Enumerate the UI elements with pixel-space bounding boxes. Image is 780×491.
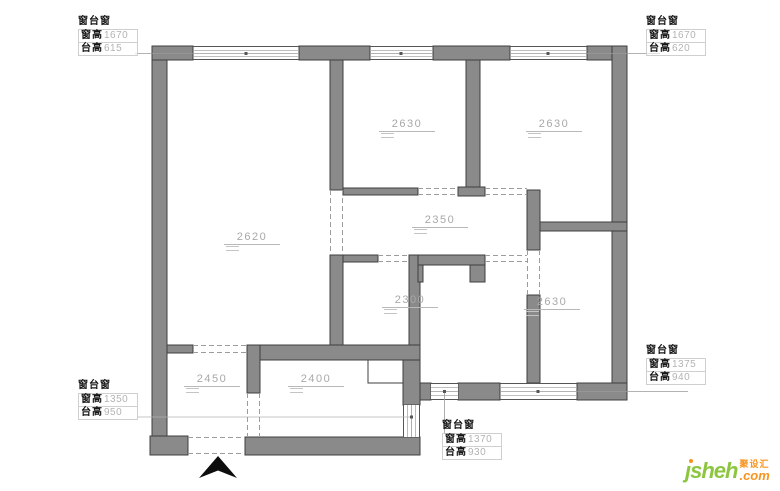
dimension-subtext — [528, 133, 541, 138]
sill-height-row: 台高950 — [78, 406, 138, 420]
dimension-line — [288, 386, 344, 387]
dimension-value: 2350 — [412, 214, 468, 227]
window-label-title: 窗台窗 — [78, 380, 138, 392]
logo-j-dot — [689, 459, 693, 463]
window-height-row: 窗高1350 — [78, 393, 138, 407]
dimension-line — [224, 244, 280, 245]
window-label-bottom-center: 窗台窗 窗高1370 台高930 — [442, 420, 502, 460]
dimension-subtext — [381, 133, 394, 138]
window-label-top-right: 窗台窗 窗高1670 台高620 — [646, 16, 706, 56]
window-height-row: 窗高1375 — [646, 358, 706, 372]
window-label-title: 窗台窗 — [646, 16, 706, 28]
dimension-line — [412, 227, 468, 228]
room-dim-hallway: 2350 — [412, 214, 468, 234]
door-opening-layer — [188, 189, 540, 454]
logo-brand-text: ȷsheh — [685, 458, 737, 484]
dimension-line — [379, 131, 435, 132]
dimension-subtext — [414, 229, 427, 234]
dimension-subtext — [384, 309, 397, 314]
dimension-value: 2630 — [526, 118, 582, 131]
dimension-line — [524, 309, 580, 310]
window-height-row: 窗高1670 — [646, 29, 706, 43]
room-dim-bedroom-top-middle: 2630 — [379, 118, 435, 138]
sill-height-row: 台高940 — [646, 371, 706, 385]
dimension-value: 2400 — [288, 373, 344, 386]
room-dim-bedroom-top-right: 2630 — [526, 118, 582, 138]
dimension-line — [526, 131, 582, 132]
window-label-title: 窗台窗 — [442, 420, 502, 432]
sill-height-row: 台高620 — [646, 42, 706, 56]
dimension-subtext — [186, 388, 199, 393]
window-label-top-left: 窗台窗 窗高1670 台高615 — [78, 16, 138, 56]
jsheh-logo: ȷsheh聚设汇.com — [685, 458, 780, 488]
dimension-value: 2450 — [184, 373, 240, 386]
window-label-bottom-left: 窗台窗 窗高1350 台高950 — [78, 380, 138, 420]
dimension-value: 2620 — [224, 231, 280, 244]
entrance-arrow-icon — [199, 456, 237, 478]
room-dim-bedroom-bottom-right: 2630 — [524, 296, 580, 316]
sill-height-row: 台高930 — [442, 446, 502, 460]
window-label-title: 窗台窗 — [78, 16, 138, 28]
dimension-subtext — [226, 246, 239, 251]
floorplan-page: 窗台窗 窗高1670 台高615 窗台窗 窗高1670 台高620 窗台窗 窗高… — [0, 0, 780, 491]
window-label-title: 窗台窗 — [646, 345, 706, 357]
room-dim-entry: 2450 — [184, 373, 240, 393]
dimension-value: 2300 — [382, 294, 438, 307]
dimension-value: 2630 — [379, 118, 435, 131]
room-dim-room-middle: 2300 — [382, 294, 438, 314]
logo-tld-text: .com — [739, 469, 769, 482]
window-height-row: 窗高1670 — [78, 29, 138, 43]
room-dim-living-room: 2620 — [224, 231, 280, 251]
dimension-line — [184, 386, 240, 387]
window-label-right-middle: 窗台窗 窗高1375 台高940 — [646, 345, 706, 385]
dimension-value: 2630 — [524, 296, 580, 309]
room-dim-kitchen: 2400 — [288, 373, 344, 393]
dimension-subtext — [290, 388, 303, 393]
sill-height-row: 台高615 — [78, 42, 138, 56]
dimension-line — [382, 307, 438, 308]
window-height-row: 窗高1370 — [442, 433, 502, 447]
kitchen-flue-notch — [368, 360, 403, 383]
dimension-subtext — [526, 311, 539, 316]
